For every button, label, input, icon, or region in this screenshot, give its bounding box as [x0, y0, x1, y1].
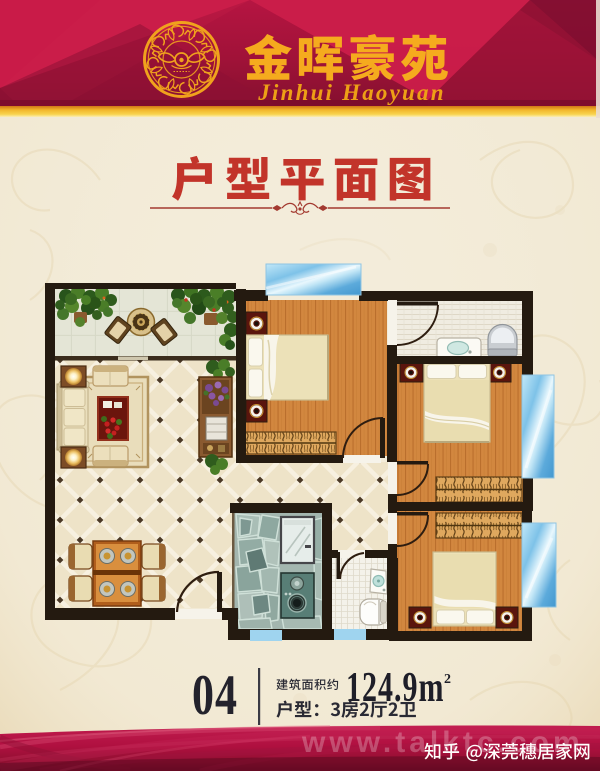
svg-text:04: 04 [192, 665, 238, 728]
svg-text:www.talktc.com: www.talktc.com [301, 726, 584, 759]
svg-text:2: 2 [444, 672, 451, 687]
svg-text:Jinhui Haoyuan: Jinhui Haoyuan [257, 80, 445, 105]
